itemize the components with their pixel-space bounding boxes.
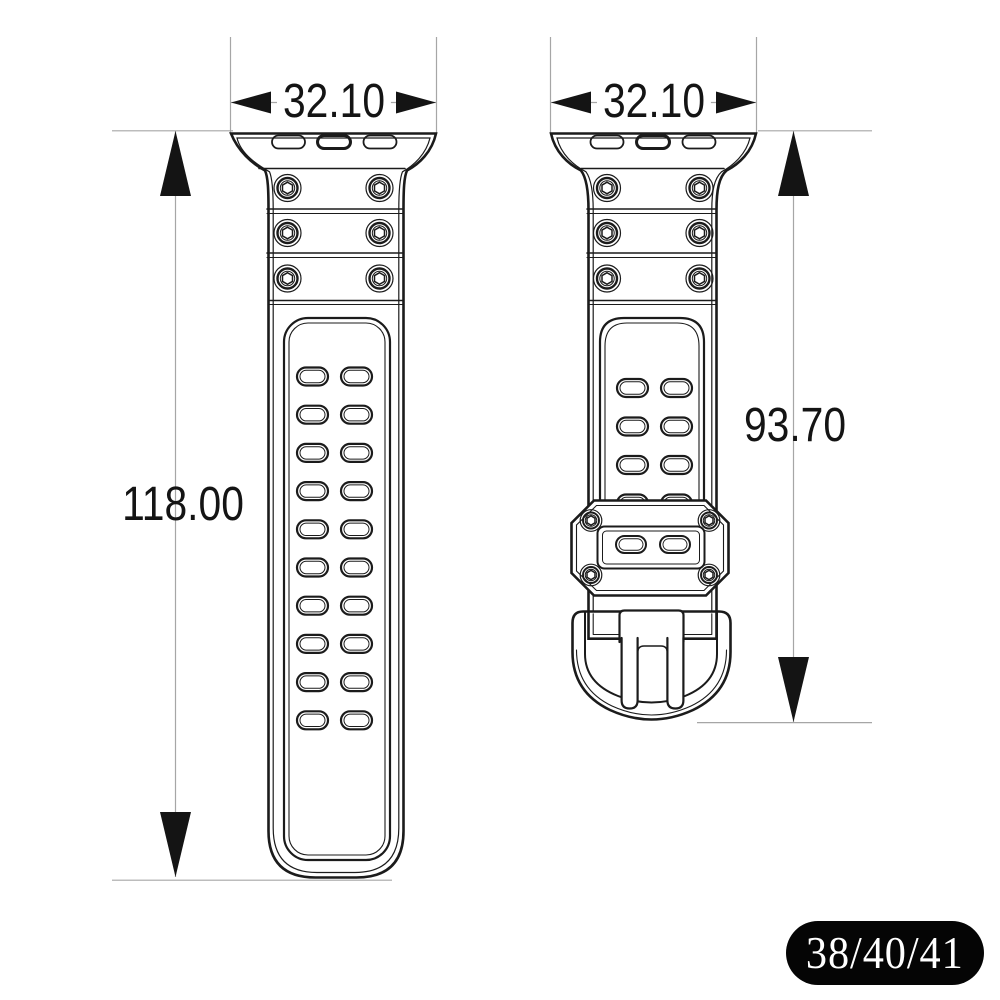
size-badge: 38/40/41 <box>786 921 984 985</box>
dim-arrow-left <box>231 92 271 114</box>
front-view-drawing <box>231 134 436 878</box>
tongue-tab <box>620 611 684 643</box>
tongue-prong <box>667 638 683 709</box>
dimension-lines <box>112 37 872 880</box>
technical-drawing-page: 32.10 32.10 118.00 93.70 38/40/41 <box>0 0 1000 1000</box>
dim-arrow-up <box>778 131 809 196</box>
buckle-keeper <box>572 501 729 596</box>
dimension-label-buckle-width: 32.10 <box>596 78 710 126</box>
dim-arrow-down <box>778 657 809 722</box>
dim-arrow-right <box>396 92 436 114</box>
dim-arrow-up <box>160 131 191 196</box>
dim-arrow-right <box>716 92 756 114</box>
band-silhouette <box>231 134 436 878</box>
dim-arrow-left <box>551 92 591 114</box>
dim-arrow-down <box>160 812 191 877</box>
buckle-view-drawing <box>551 134 756 720</box>
size-badge-label: 38/40/41 <box>806 930 964 976</box>
dimension-label-front-length: 118.00 <box>122 481 244 529</box>
dimension-label-buckle-length: 93.70 <box>744 402 846 450</box>
tongue-prong <box>622 638 638 709</box>
dimension-label-front-width: 32.10 <box>276 78 390 126</box>
